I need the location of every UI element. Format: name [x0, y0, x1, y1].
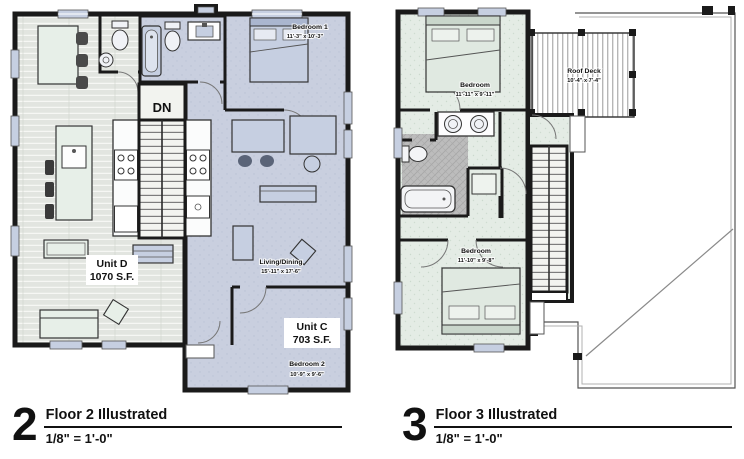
bedroom2-dims: 10'-9" x 9'-6" [290, 372, 324, 378]
vanity-sink-icon [188, 22, 220, 40]
toilet-icon [112, 21, 128, 50]
floor2-caption: 2 Floor 2 Illustrated 1/8" = 1'-0" [12, 406, 342, 446]
living-dining-label: Living/Dining [259, 259, 302, 266]
bedroom1-dims: 11'-3" x 10'-3" [287, 34, 324, 40]
sofa-icon [40, 310, 98, 338]
floor2-caption-number: 2 [12, 406, 37, 444]
stairs-up [531, 146, 567, 301]
living-dining-dims: 15'-11" x 17'-6" [261, 269, 301, 275]
floor3-caption-scale: 1/8" = 1'-0" [434, 428, 732, 446]
floor2-caption-scale: 1/8" = 1'-0" [44, 428, 342, 446]
dining-table-icon [38, 26, 88, 89]
bathtub-icon [142, 26, 161, 76]
stairs-dn-label: DN [153, 100, 172, 115]
roof-deck-label: Roof Deck [567, 68, 601, 75]
bedroom-lower-dims: 11'-10" x 9'-8" [458, 258, 495, 264]
bed-icon [442, 268, 520, 334]
sink-icon [99, 53, 113, 67]
unit-d-area: 1070 S.F. [90, 271, 134, 283]
floor-plan-sheet: DN [0, 0, 744, 459]
bedroom1-label: Bedroom 1 [292, 24, 328, 31]
unit-d-counter [113, 120, 139, 236]
floor3-caption: 3 Floor 3 Illustrated 1/8" = 1'-0" [402, 406, 732, 446]
coffee-table-icon [44, 240, 88, 258]
unit-c-label: Unit C [297, 321, 328, 333]
floor3-caption-number: 3 [402, 406, 427, 444]
tv-console-icon [233, 226, 253, 260]
bedroom2-label: Bedroom 2 [289, 361, 325, 368]
unit-d-label: Unit D [97, 258, 128, 270]
unit-c-counter [185, 120, 211, 236]
bedroom-upper-dims: 11'-11" x 9'-11" [456, 92, 495, 98]
dresser-icon [133, 245, 173, 263]
bed-icon [426, 16, 500, 92]
unit-c-area: 703 S.F. [293, 334, 332, 346]
bedroom-upper-label: Bedroom [460, 82, 490, 89]
floor3-caption-title: Floor 3 Illustrated [434, 407, 732, 428]
bedroom-lower-label: Bedroom [461, 248, 491, 255]
floor3-plan-drawing: Bedroom 11'-11" x 9'-11" Roof Deck 10'-4… [372, 0, 744, 396]
stairs-down: DN [139, 84, 185, 238]
bench-icon [260, 186, 316, 202]
toilet-icon [402, 146, 427, 162]
closet-cabinet-icon [472, 174, 496, 194]
bathtub-icon [401, 186, 455, 212]
double-vanity-icon [438, 112, 494, 136]
floor2-plan-drawing: DN [0, 0, 372, 396]
toilet-icon [165, 22, 180, 51]
roof-deck-dims: 10'-4" x 7'-4" [567, 78, 601, 84]
floor2-caption-title: Floor 2 Illustrated [44, 407, 342, 428]
